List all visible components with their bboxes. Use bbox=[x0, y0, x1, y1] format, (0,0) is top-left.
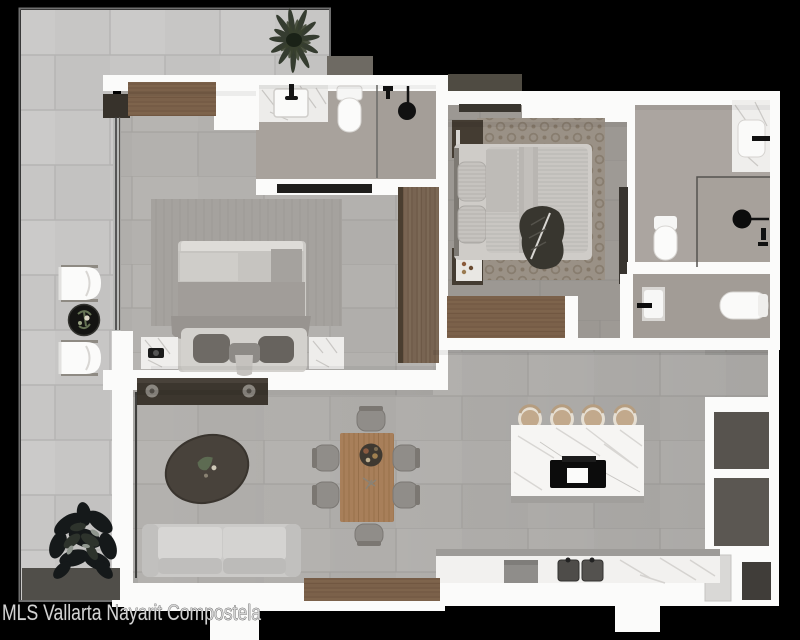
svg-text:MLS Vallarta Nayarit Compostel: MLS Vallarta Nayarit Compostela bbox=[2, 600, 262, 625]
